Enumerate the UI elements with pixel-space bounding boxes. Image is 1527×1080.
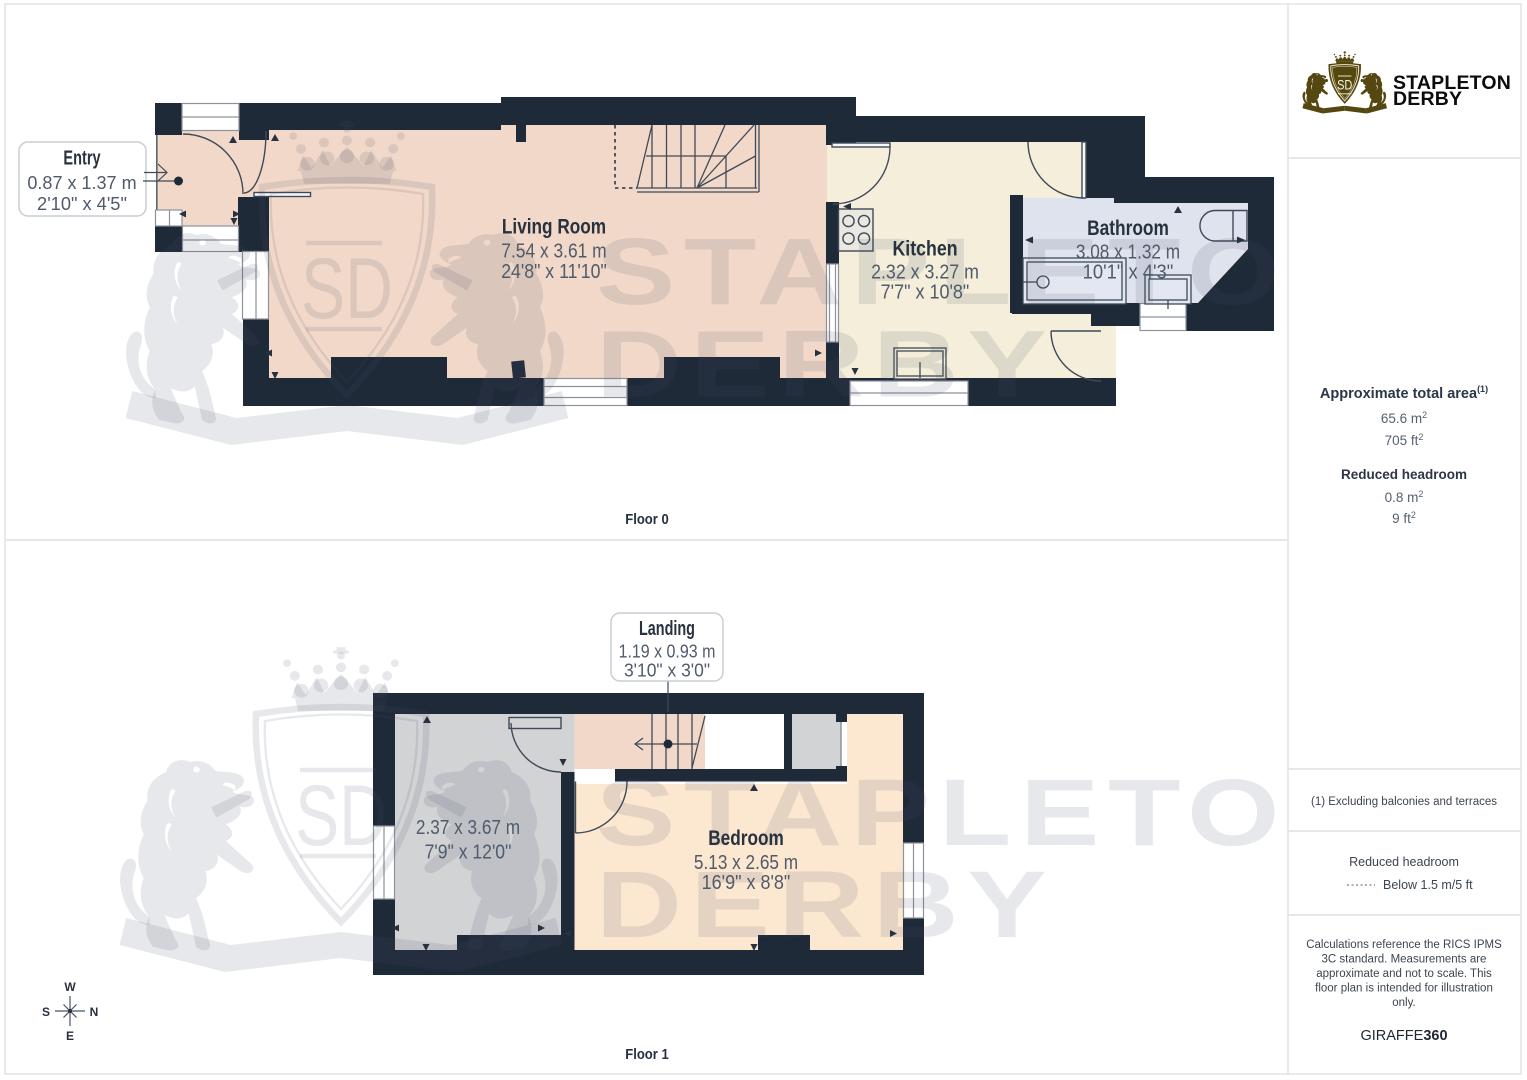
svg-text:N: N [90, 1005, 99, 1019]
svg-text:3'10" x 3'0": 3'10" x 3'0" [624, 660, 710, 681]
svg-text:7.54 x 3.61 m: 7.54 x 3.61 m [501, 240, 606, 262]
svg-text:10'1" x 4'3": 10'1" x 4'3" [1083, 262, 1174, 284]
svg-text:DERBY: DERBY [1393, 88, 1462, 110]
svg-text:approximate and not to scale.: approximate and not to scale. This [1316, 968, 1492, 980]
svg-text:2'10" x 4'5": 2'10" x 4'5" [37, 193, 127, 214]
svg-text:705 ft2: 705 ft2 [1385, 432, 1424, 448]
svg-text:Reduced headroom: Reduced headroom [1349, 855, 1459, 869]
svg-text:5.13 x 2.65 m: 5.13 x 2.65 m [694, 851, 798, 874]
svg-text:W: W [64, 980, 76, 994]
svg-text:Living Room: Living Room [502, 216, 606, 239]
svg-text:GIRAFFE360: GIRAFFE360 [1360, 1028, 1447, 1044]
svg-text:Reduced headroom: Reduced headroom [1341, 467, 1467, 482]
svg-text:1.19 x 0.93 m: 1.19 x 0.93 m [619, 640, 716, 662]
svg-text:Floor 1: Floor 1 [625, 1046, 669, 1062]
svg-text:Bedroom: Bedroom [708, 828, 784, 851]
svg-text:Kitchen: Kitchen [892, 237, 957, 261]
svg-text:9 ft2: 9 ft2 [1392, 510, 1416, 526]
svg-text:Landing: Landing [639, 617, 695, 640]
svg-text:Calculations reference the RIC: Calculations reference the RICS IPMS [1306, 939, 1502, 951]
svg-text:E: E [66, 1029, 74, 1043]
svg-text:0.8 m2: 0.8 m2 [1385, 489, 1424, 505]
svg-text:7'9" x 12'0": 7'9" x 12'0" [425, 840, 512, 862]
svg-text:3C standard. Measurements are: 3C standard. Measurements are [1322, 954, 1487, 966]
svg-text:Below 1.5 m/5 ft: Below 1.5 m/5 ft [1383, 878, 1473, 892]
svg-text:Floor 0: Floor 0 [625, 511, 669, 527]
svg-text:floor plan is intended for ill: floor plan is intended for illustration [1315, 983, 1493, 995]
svg-text:7'7" x 10'8": 7'7" x 10'8" [881, 282, 970, 304]
svg-text:only.: only. [1392, 997, 1415, 1009]
svg-text:Entry: Entry [63, 146, 100, 169]
svg-text:Bathroom: Bathroom [1087, 218, 1169, 241]
svg-text:SD: SD [1337, 77, 1352, 92]
svg-text:65.6 m2: 65.6 m2 [1381, 410, 1427, 426]
svg-text:3.08 x 1.32 m: 3.08 x 1.32 m [1076, 240, 1180, 263]
svg-text:0.87 x 1.37 m: 0.87 x 1.37 m [27, 172, 136, 193]
svg-text:S: S [42, 1005, 50, 1019]
svg-text:2.37 x 3.67 m: 2.37 x 3.67 m [416, 816, 520, 839]
svg-text:Approximate total area(1): Approximate total area(1) [1320, 384, 1488, 402]
svg-text:(1) Excluding balconies and te: (1) Excluding balconies and terraces [1311, 796, 1497, 808]
svg-text:16'9" x 8'8": 16'9" x 8'8" [702, 872, 791, 894]
svg-text:24'8" x 11'10": 24'8" x 11'10" [501, 261, 607, 283]
